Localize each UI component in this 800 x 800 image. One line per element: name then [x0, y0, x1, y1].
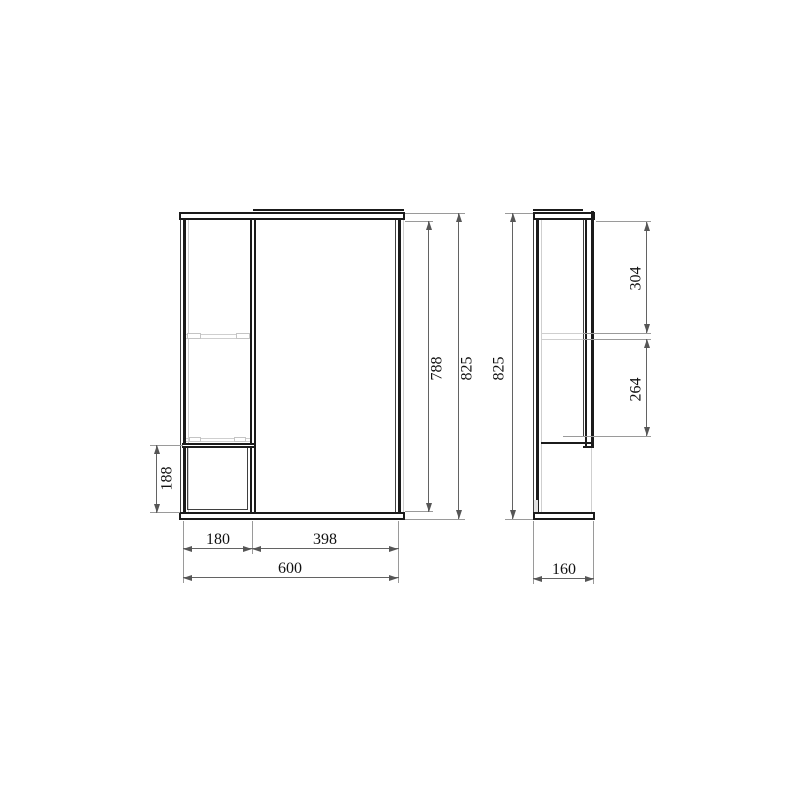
side-back-inner-line	[541, 220, 542, 512]
side-compartment-bottom-line	[541, 442, 592, 444]
front-divider-line-b	[254, 220, 256, 512]
front-lowerbox-bottom-line	[187, 509, 248, 510]
side-door-inner-line	[583, 220, 584, 437]
front-dimline-180-398	[183, 548, 399, 549]
front-door-top-edge-line	[253, 209, 404, 211]
side-top-board	[533, 212, 595, 220]
arrow-icon	[456, 213, 462, 222]
side-top-back-edge-line	[533, 209, 583, 211]
front-horizontal-divider	[182, 443, 254, 448]
side-ext-825-bottom	[505, 519, 533, 520]
front-right-overhang-line	[403, 220, 404, 512]
dim-label-inner-height: 788	[429, 347, 446, 391]
dim-label-left-section-width: 180	[196, 531, 240, 548]
arrow-icon	[389, 546, 398, 552]
front-lower-support-right	[234, 437, 246, 442]
dim-label-front-overall-height: 825	[459, 347, 476, 391]
arrow-icon	[426, 503, 432, 512]
arrow-icon	[183, 546, 192, 552]
arrow-icon	[252, 546, 261, 552]
side-ext-160-right	[593, 521, 594, 584]
arrow-icon	[644, 339, 650, 348]
side-ext-shelf-bottom	[583, 339, 651, 340]
arrow-icon	[533, 576, 542, 582]
front-bottom-board	[179, 512, 405, 520]
side-door-bottom-cap-line	[583, 446, 594, 448]
arrow-icon	[389, 575, 398, 581]
front-ext-825-bottom	[405, 519, 465, 520]
front-left-edge-line	[180, 220, 181, 512]
arrow-icon	[243, 546, 252, 552]
side-dimline-825	[512, 213, 513, 519]
arrow-icon	[426, 221, 432, 230]
dim-label-lower-left-height: 188	[159, 457, 176, 501]
front-top-board	[179, 212, 405, 220]
front-lowerbox-right-line	[247, 448, 248, 510]
side-dimline-264	[646, 339, 647, 436]
dim-label-lower-compartment: 264	[628, 368, 645, 412]
front-dimline-188	[156, 445, 157, 513]
side-back-edge-line	[533, 220, 534, 512]
front-left-frame-line	[183, 220, 186, 512]
side-bottom-board	[533, 512, 595, 520]
front-left-inner-line	[188, 220, 189, 512]
front-shelf-support-right	[236, 333, 250, 339]
front-right-inner-line	[395, 220, 396, 512]
arrow-icon	[644, 324, 650, 333]
technical-drawing-canvas: 188 180 398 600 788 825	[0, 0, 800, 800]
side-ext-304-top	[596, 221, 651, 222]
arrow-icon	[183, 575, 192, 581]
front-ext-bottom-left	[183, 521, 184, 583]
side-shelf-line-bottom	[541, 339, 583, 340]
side-ext-shelf-top	[583, 333, 651, 334]
side-dimline-304	[646, 222, 647, 333]
front-dimline-600	[183, 577, 399, 578]
side-back-panel-line	[536, 220, 539, 512]
arrow-icon	[154, 504, 160, 513]
side-ext-264-bottom	[563, 436, 651, 437]
front-lower-support-left	[189, 437, 201, 442]
dim-label-upper-compartment: 304	[628, 257, 645, 301]
front-divider-line-a	[250, 220, 252, 512]
arrow-icon	[510, 213, 516, 222]
front-shelf-support-left	[187, 333, 201, 339]
dim-label-depth: 160	[542, 561, 586, 578]
arrow-icon	[510, 510, 516, 519]
arrow-icon	[154, 445, 160, 454]
arrow-icon	[456, 510, 462, 519]
front-ext-bottom-right	[398, 521, 399, 583]
dim-label-side-overall-height: 825	[491, 347, 508, 391]
dim-label-total-width: 600	[268, 560, 312, 577]
side-lower-front-line	[591, 448, 592, 512]
front-right-frame-line	[398, 220, 401, 512]
side-shelf-line-top	[541, 333, 583, 334]
dim-label-right-section-width: 398	[303, 531, 347, 548]
arrow-icon	[585, 576, 594, 582]
side-ext-160-left	[533, 521, 534, 584]
arrow-icon	[644, 427, 650, 436]
front-lowerbox-left-line	[187, 448, 188, 510]
side-door-front-line	[591, 211, 594, 447]
arrow-icon	[644, 222, 650, 231]
side-back-foot-detail	[534, 500, 538, 512]
